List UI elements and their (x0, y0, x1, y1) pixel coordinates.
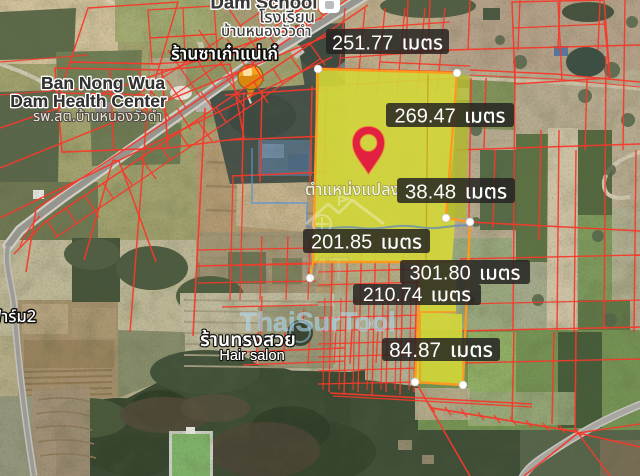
svg-text:269.47: 269.47 (395, 106, 456, 128)
svg-text:251.77: 251.77 (332, 33, 393, 55)
svg-text:210.74: 210.74 (363, 284, 423, 306)
svg-text:MT: MT (300, 251, 349, 289)
svg-text:84.87: 84.87 (389, 339, 441, 362)
svg-text:Dam Health Center: Dam Health Center (10, 91, 167, 111)
svg-text:201.85: 201.85 (311, 232, 372, 254)
svg-text:38.48: 38.48 (405, 181, 456, 204)
svg-text:Ban Nong Wua: Ban Nong Wua (41, 73, 165, 93)
svg-text:Hair salon: Hair salon (219, 348, 284, 364)
svg-text:301.80: 301.80 (410, 263, 471, 285)
svg-text:ThaiSurTool: ThaiSurTool (240, 307, 396, 337)
